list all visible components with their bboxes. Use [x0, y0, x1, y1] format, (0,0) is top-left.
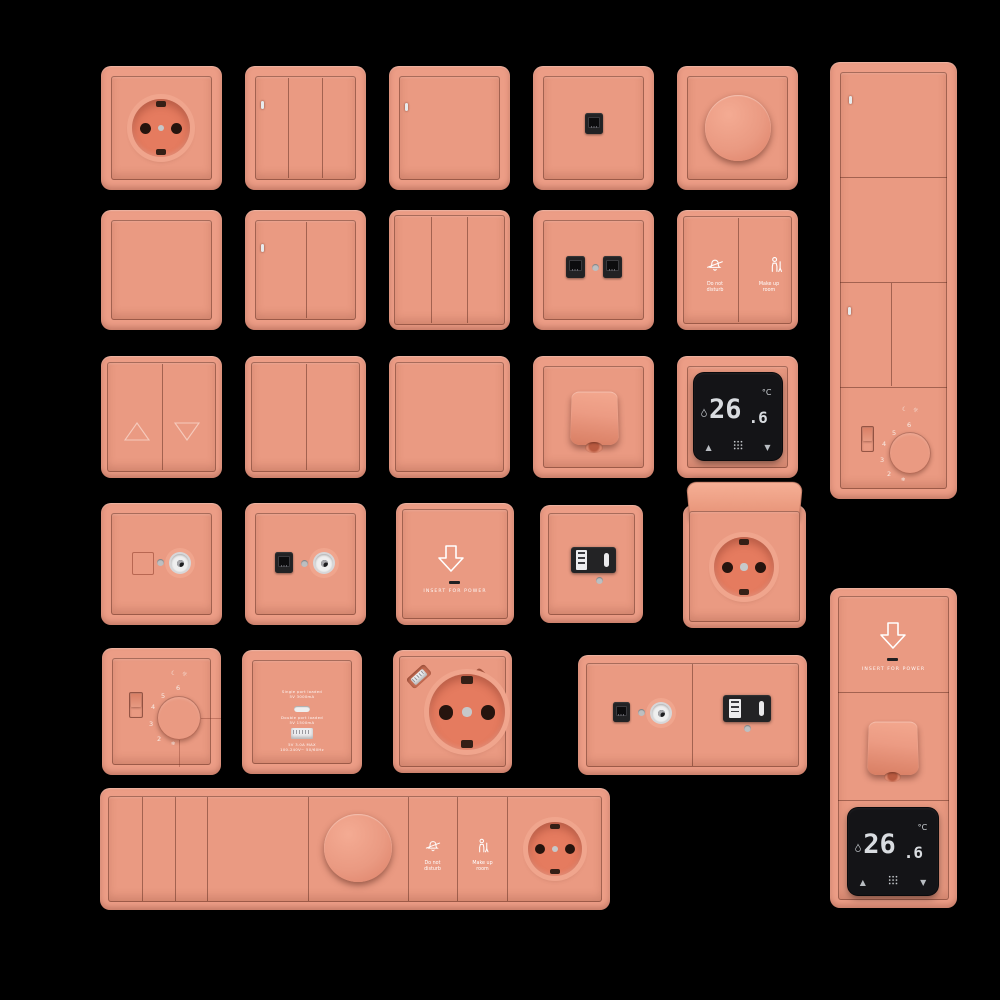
plate-cable-outlet — [533, 356, 654, 478]
heat-icon — [701, 408, 707, 418]
dial-number: 4 — [151, 704, 155, 711]
charger-rating-label: 5V 3.0A MAX100-240V~ 50/60Hz — [252, 743, 352, 752]
usb-c-port[interactable] — [294, 706, 310, 712]
ethernet-port[interactable] — [585, 113, 603, 134]
indicator-dot — [638, 709, 645, 716]
housekeeping-icon — [765, 254, 787, 276]
plate-dnd-switch: Do notdisturb Make uproom — [677, 210, 798, 330]
plate-tv-socket — [101, 503, 222, 625]
cable-outlet-flap[interactable] — [570, 392, 619, 445]
temperature-unit: °C — [918, 823, 928, 832]
ethernet-port[interactable] — [275, 552, 293, 573]
ethernet-port[interactable] — [603, 256, 622, 278]
sun-icon: ☼ — [913, 408, 918, 414]
dial-number: 4 — [882, 441, 886, 448]
temperature-decimal: .6 — [749, 410, 768, 426]
plate-usb-charger: Single port loaded5V 3000mA Double port … — [242, 650, 362, 774]
dial-number: 5 — [892, 430, 896, 437]
earth-clip-icon — [739, 539, 749, 545]
plate-dimmer — [677, 66, 798, 190]
plate-blind-switch — [101, 356, 222, 478]
led-indicator — [848, 307, 851, 315]
switch-rocker[interactable] — [395, 362, 504, 472]
plate-schuko-socket — [101, 66, 222, 190]
sun-icon: ☼ — [182, 672, 187, 678]
plate-switch-1gang — [389, 356, 510, 478]
module-divider — [838, 692, 949, 693]
pin-hole — [722, 562, 733, 573]
indicator-dot — [301, 560, 308, 567]
blind-down-icon — [172, 420, 202, 443]
dial-number: 5 — [161, 693, 165, 700]
switch-rockers[interactable] — [255, 76, 356, 180]
rocker-divider — [162, 364, 163, 470]
led-indicator — [261, 244, 264, 252]
panel-4-module: ☾ ☼ 6 5 4 3 2 ❄ — [830, 62, 957, 499]
plate-switch-2gang — [245, 356, 366, 478]
flap-pull[interactable] — [884, 772, 901, 782]
switch-rocker[interactable] — [399, 76, 500, 180]
thermostat-dial[interactable] — [157, 696, 201, 740]
rocker-divider — [306, 364, 307, 470]
rocker-divider — [175, 797, 176, 901]
dimmer-knob[interactable] — [324, 814, 392, 882]
pin-hole — [171, 123, 182, 134]
module-divider — [507, 797, 508, 901]
temperature-value: 26 — [863, 831, 896, 858]
plate-keycard-holder: INSERT FOR POWER — [396, 503, 514, 625]
usb-a-port[interactable] — [729, 699, 741, 718]
usb-c-port[interactable] — [604, 553, 609, 567]
indicator-dot — [596, 577, 603, 584]
switch-rockers[interactable] — [251, 362, 360, 472]
plate-switch-3gang-flush — [389, 210, 510, 330]
dnd-label: Do notdisturb — [690, 282, 740, 294]
bell-slash-icon — [423, 836, 443, 856]
usb-c-spec-label: Single port loaded5V 3000mA — [252, 690, 352, 699]
temp-up-button[interactable]: ▲ — [705, 444, 711, 452]
blind-up-icon — [122, 420, 152, 443]
plate-analog-thermostat: ☾ ☼ 6 5 4 3 2 ❄ — [102, 648, 221, 775]
keycard-label: INSERT FOR POWER — [396, 590, 514, 595]
card-slot[interactable] — [887, 658, 898, 661]
plate-socket-open-flap — [683, 505, 806, 628]
switch-rockers[interactable] — [394, 215, 505, 325]
indicator-dot — [592, 264, 599, 271]
flap-pull[interactable] — [585, 442, 603, 453]
temperature-value: 26 — [709, 396, 742, 423]
earth-clip-icon — [550, 824, 559, 829]
rocker-divider — [457, 797, 458, 901]
moon-icon: ☾ — [902, 407, 907, 413]
pin-hole — [439, 705, 453, 719]
earth-clip-icon — [550, 869, 559, 874]
indicator-dot — [744, 725, 751, 732]
dial-number: 3 — [149, 721, 153, 728]
dial-number: 3 — [880, 457, 884, 464]
plate-data-socket — [533, 66, 654, 190]
center-dot — [740, 563, 747, 570]
temperature-unit: °C — [762, 388, 772, 397]
rocker-divider — [738, 218, 739, 322]
rocker-divider — [431, 217, 432, 323]
usb-module — [571, 547, 616, 573]
keycard-label: INSERT FOR POWER — [834, 668, 953, 673]
pin-hole — [140, 123, 151, 134]
moon-icon: ☾ — [171, 671, 176, 677]
heat-icon — [855, 843, 861, 853]
module-divider — [207, 797, 208, 901]
plate-digital-thermostat: 26 .6 °C ▲ ▼ — [677, 356, 798, 478]
indicator-dot — [157, 559, 164, 566]
bell-slash-icon — [704, 254, 726, 276]
plate-schuko-usb-socket — [393, 650, 512, 773]
module-divider — [838, 800, 949, 801]
dial-number: 6 — [907, 422, 911, 429]
module-divider — [308, 797, 309, 901]
heat-toggle-switch[interactable] — [861, 426, 874, 452]
panel-3-module: INSERT FOR POWER 26 .6 °C ▲ ▼ — [830, 588, 957, 908]
temp-down-button[interactable]: ▼ — [920, 879, 926, 887]
dial-number: 6 — [176, 685, 180, 692]
pin-hole — [755, 562, 766, 573]
usb-a-spec-label: Double port loaded5V 1500mA — [252, 716, 352, 725]
plate-switch-1gang — [389, 66, 510, 190]
switch-rockers[interactable] — [107, 362, 216, 472]
temp-up-button[interactable]: ▲ — [860, 879, 866, 887]
usb-c-port[interactable] — [759, 701, 764, 716]
housekeeping-icon — [473, 836, 493, 856]
mur-label: Make uproom — [744, 282, 794, 294]
thermostat-dial[interactable] — [889, 432, 931, 474]
temp-down-button[interactable]: ▼ — [764, 444, 770, 452]
module-divider — [840, 282, 947, 283]
schuko-socket[interactable] — [132, 99, 190, 157]
thermostat-dial-module: ☾ ☼ 6 5 4 3 2 ❄ — [830, 387, 957, 489]
rocker-divider — [322, 78, 323, 178]
product-grid: ☾ ☼ 6 5 4 3 2 ❄ — [0, 0, 1000, 1000]
ethernet-port[interactable] — [566, 256, 585, 278]
earth-clip-icon — [156, 101, 166, 107]
module-divider — [692, 664, 693, 766]
insert-arrow-icon — [434, 544, 468, 574]
snowflake-icon: ❄ — [171, 742, 175, 747]
card-slot[interactable] — [449, 581, 460, 584]
insert-arrow-icon — [876, 621, 910, 651]
plate-switch-3gang — [245, 66, 366, 190]
square-recess — [132, 552, 154, 575]
dimmer-knob[interactable] — [705, 95, 771, 161]
led-indicator — [261, 101, 264, 109]
heat-toggle-switch[interactable] — [129, 692, 143, 718]
mur-label: Make uproom — [458, 861, 507, 873]
snowflake-icon: ❄ — [901, 478, 905, 483]
menu-dots-icon[interactable] — [733, 440, 743, 450]
face-seam — [201, 718, 221, 719]
center-dot — [552, 846, 558, 852]
coax-connector[interactable] — [171, 554, 189, 572]
temperature-decimal: .6 — [904, 845, 923, 861]
schuko-socket[interactable] — [714, 537, 774, 597]
plate-usb-outlet — [540, 505, 643, 623]
face-seam — [179, 740, 180, 767]
plate-data-tv-socket — [245, 503, 366, 625]
center-dot — [158, 125, 165, 132]
menu-dots-icon[interactable] — [888, 875, 898, 885]
rocker-divider — [467, 217, 468, 323]
earth-clip-icon — [461, 676, 474, 684]
pin-hole — [481, 705, 495, 719]
dial-number: 2 — [157, 736, 161, 743]
rocker-divider — [306, 222, 307, 318]
schuko-socket[interactable] — [429, 674, 505, 750]
module-divider — [840, 177, 947, 178]
led-indicator — [405, 103, 408, 111]
plate-data-socket-double — [533, 210, 654, 330]
dial-number: 2 — [887, 471, 891, 478]
switch-rockers[interactable] — [255, 220, 356, 320]
thermostat-display: 26 .6 °C ▲ ▼ — [848, 808, 938, 895]
pin-hole — [565, 844, 575, 854]
thermostat-display: 26 .6 °C ▲ ▼ — [694, 373, 782, 460]
earth-clip-icon — [156, 149, 166, 155]
cable-outlet-flap[interactable] — [867, 722, 919, 775]
plate-media-combo — [578, 655, 807, 775]
usb-module — [723, 695, 771, 722]
dnd-label: Do notdisturb — [408, 861, 457, 873]
rocker-divider — [891, 283, 892, 386]
coax-connector[interactable] — [652, 704, 670, 722]
rocker-divider — [142, 797, 143, 901]
rocker-divider — [288, 78, 289, 178]
schuko-socket[interactable] — [528, 822, 582, 876]
earth-clip-icon — [461, 740, 474, 748]
coax-connector[interactable] — [315, 554, 333, 572]
usb-a-port[interactable] — [291, 728, 313, 739]
panel-horizontal-combo: Do notdisturb Make uproom — [100, 788, 610, 910]
module-divider — [408, 797, 409, 901]
plate-switch-2gang — [245, 210, 366, 330]
plate-blank — [101, 210, 222, 330]
ethernet-port[interactable] — [613, 702, 630, 722]
pin-hole — [535, 844, 545, 854]
blank-face — [111, 220, 212, 320]
center-dot — [462, 707, 471, 716]
usb-a-port[interactable] — [576, 550, 587, 570]
earth-clip-icon — [739, 589, 749, 595]
led-indicator — [849, 96, 852, 104]
